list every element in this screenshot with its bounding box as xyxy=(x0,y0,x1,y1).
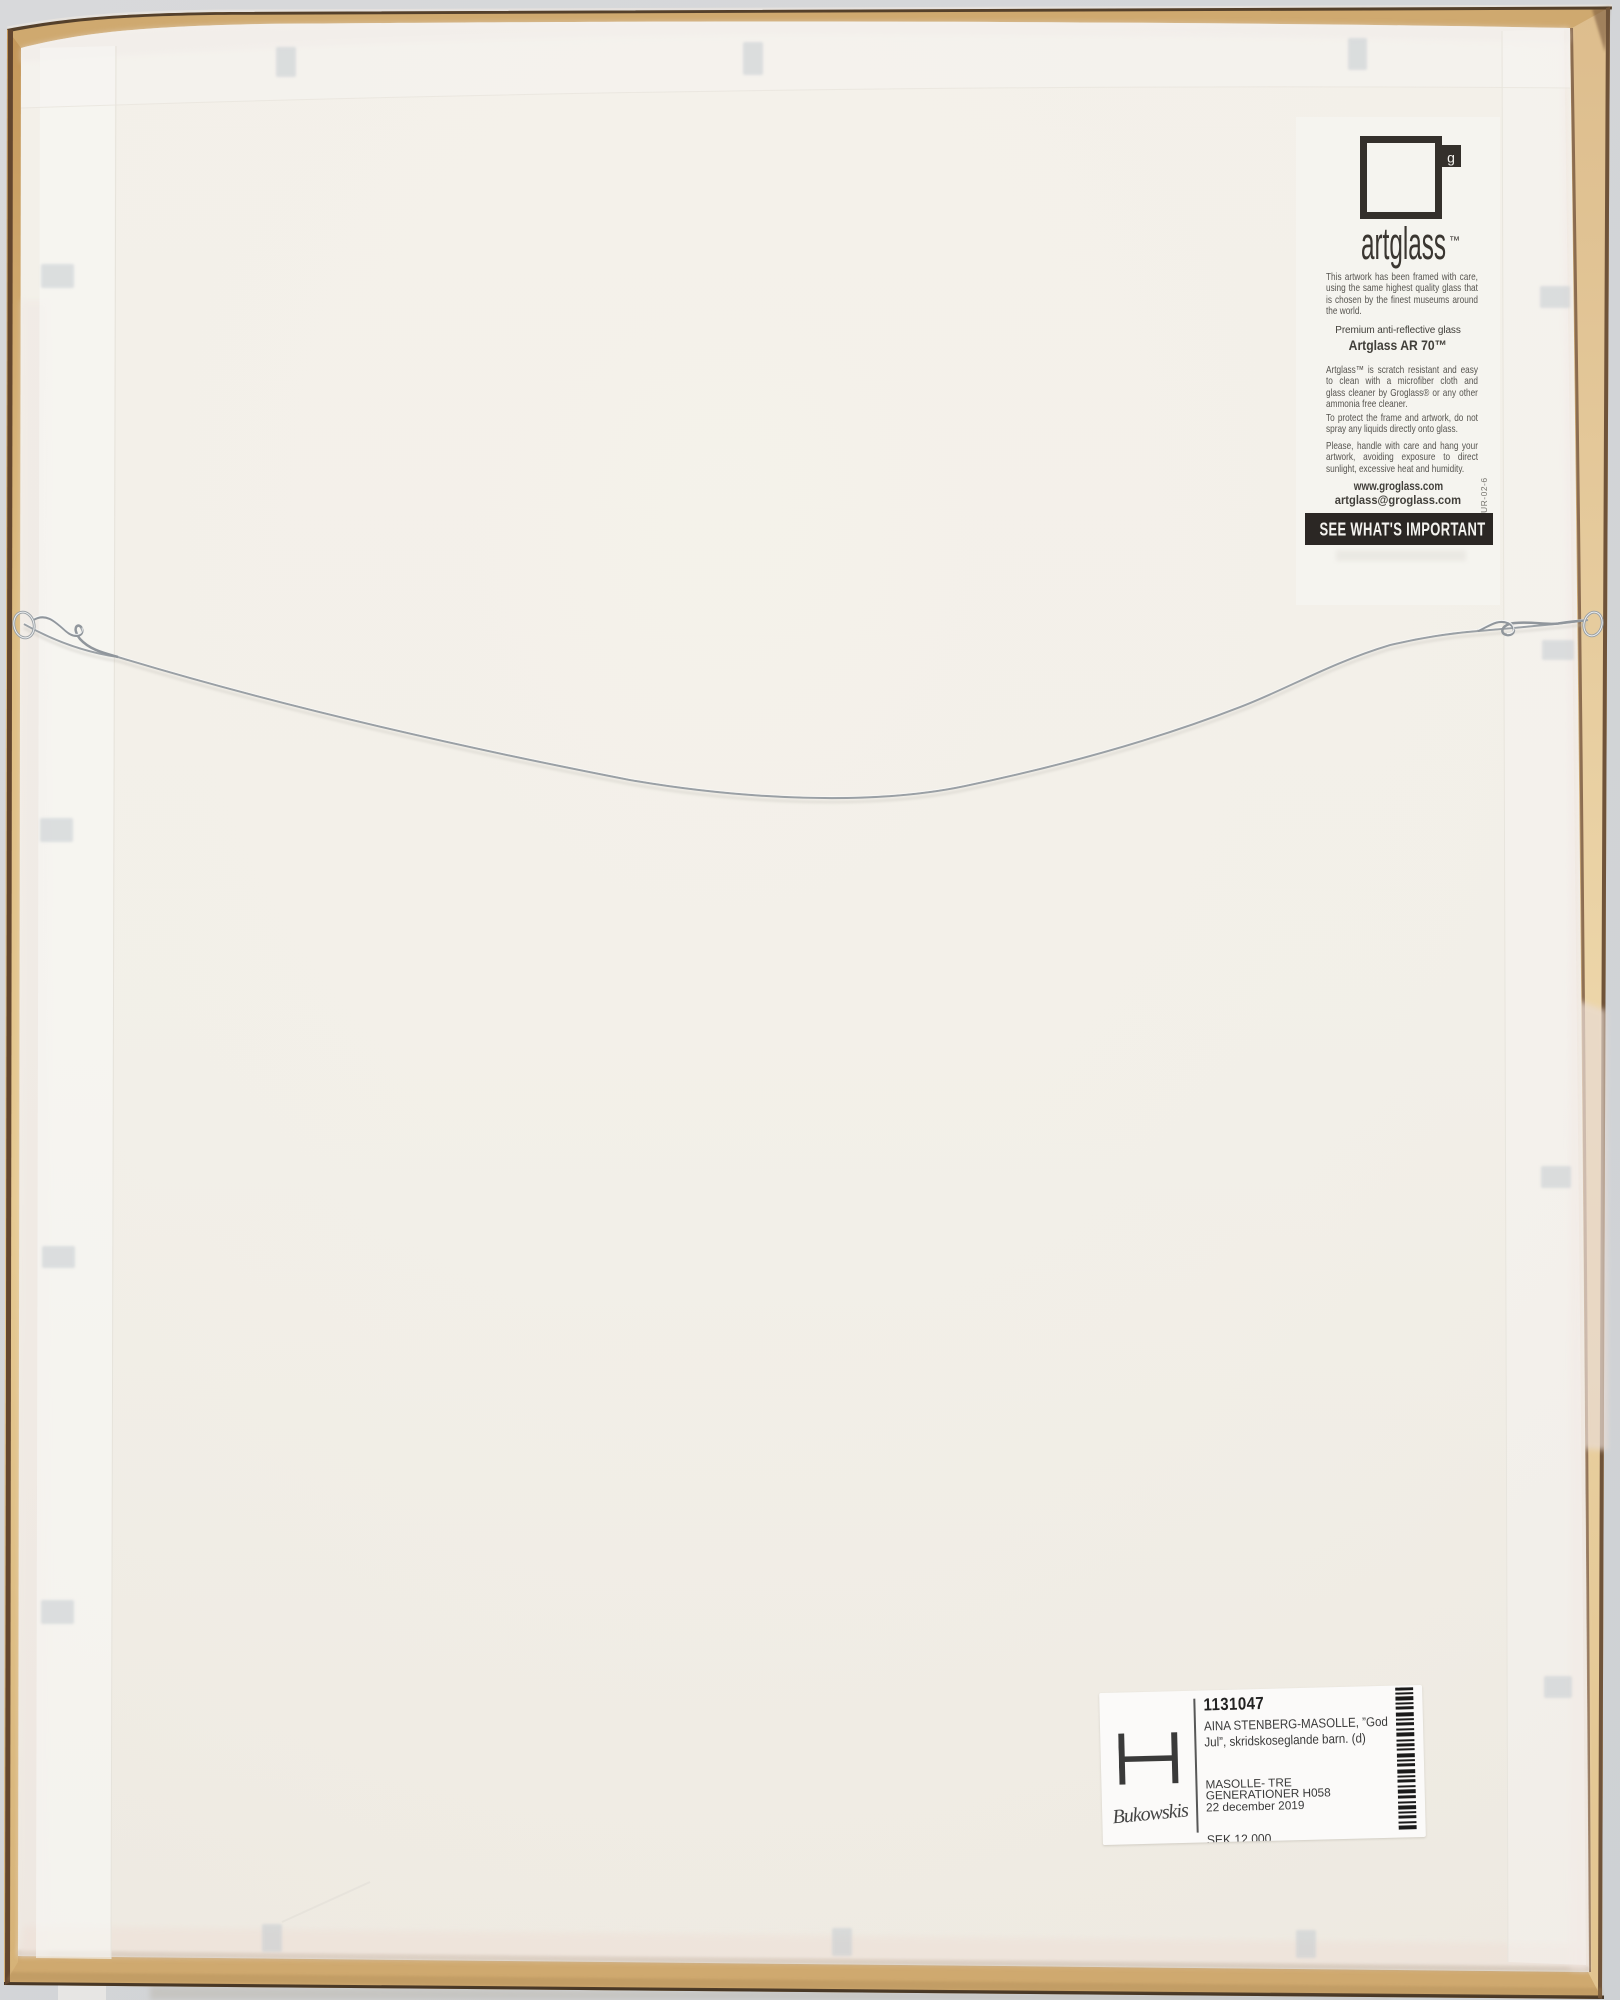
svg-text:™: ™ xyxy=(1449,235,1460,247)
svg-text:g: g xyxy=(1447,150,1455,166)
svg-text:artglass: artglass xyxy=(1361,218,1446,269)
